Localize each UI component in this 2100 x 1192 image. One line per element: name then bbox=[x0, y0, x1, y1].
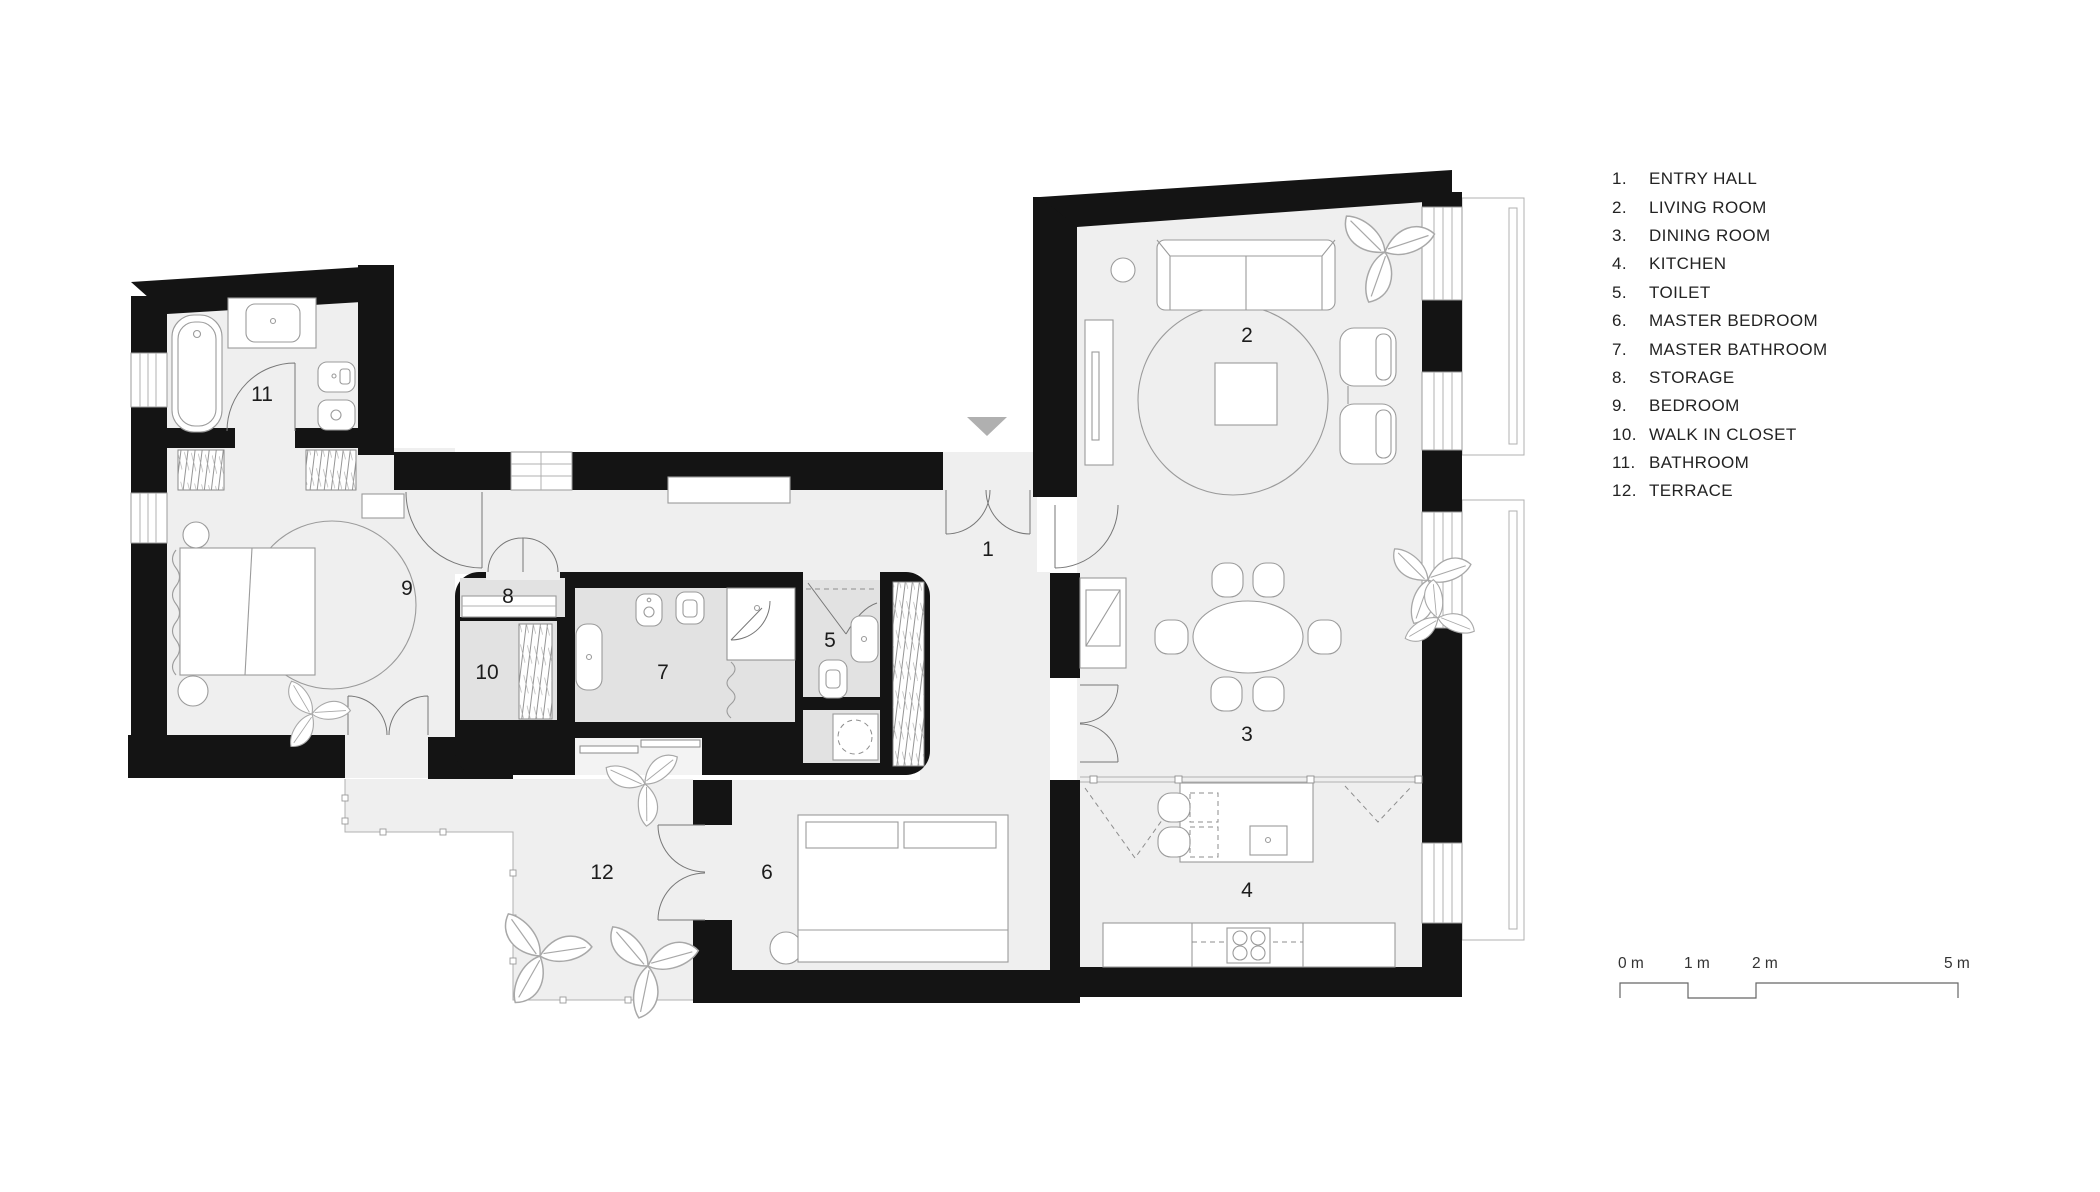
room-label-master-bedroom: 6 bbox=[761, 861, 773, 884]
scale-label-0m: 0 m bbox=[1618, 955, 1644, 972]
room-label-storage: 8 bbox=[502, 585, 514, 608]
room-label-dining-room: 3 bbox=[1241, 723, 1253, 746]
room-legend: 1. ENTRY HALL 2. LIVING ROOM 3. DINING R… bbox=[1612, 165, 1828, 506]
room-label-master-bathroom: 7 bbox=[657, 661, 669, 684]
room-label-walk-in-closet: 10 bbox=[475, 661, 498, 684]
legend-item-toilet: 5. TOILET bbox=[1612, 279, 1828, 307]
scale-label-5m: 5 m bbox=[1944, 955, 1970, 972]
legend-item-entry-hall: 1. ENTRY HALL bbox=[1612, 165, 1828, 193]
legend-item-storage: 8. STORAGE bbox=[1612, 364, 1828, 392]
legend-item-master-bedroom: 6. MASTER BEDROOM bbox=[1612, 307, 1828, 335]
floor-plan-page: 1 2 3 4 5 6 7 8 9 10 11 12 0 m 1 m 2 m 5… bbox=[0, 0, 2100, 1192]
room-label-kitchen: 4 bbox=[1241, 879, 1253, 902]
room-label-terrace: 12 bbox=[590, 861, 613, 884]
scale-label-1m: 1 m bbox=[1684, 955, 1710, 972]
legend-item-kitchen: 4. KITCHEN bbox=[1612, 250, 1828, 278]
scale-label-2m: 2 m bbox=[1752, 955, 1778, 972]
room-label-living-room: 2 bbox=[1241, 324, 1253, 347]
legend-item-terrace: 12. TERRACE bbox=[1612, 477, 1828, 505]
room-label-entry-hall: 1 bbox=[982, 538, 994, 561]
master-bedroom-furniture bbox=[770, 815, 1008, 964]
entrance-marker-icon bbox=[967, 417, 1007, 436]
room-label-toilet: 5 bbox=[824, 629, 836, 652]
legend-item-walk-in-closet: 10. WALK IN CLOSET bbox=[1612, 421, 1828, 449]
legend-item-bedroom: 9. BEDROOM bbox=[1612, 392, 1828, 420]
legend-item-master-bathroom: 7. MASTER BATHROOM bbox=[1612, 335, 1828, 363]
legend-item-bathroom: 11. BATHROOM bbox=[1612, 449, 1828, 477]
legend-item-living-room: 2. LIVING ROOM bbox=[1612, 193, 1828, 221]
room-label-bathroom: 11 bbox=[251, 383, 273, 406]
legend-item-dining-room: 3. DINING ROOM bbox=[1612, 222, 1828, 250]
scale-bar: 0 m 1 m 2 m 5 m bbox=[1618, 955, 1970, 998]
room-label-bedroom: 9 bbox=[401, 577, 413, 600]
balconies bbox=[1462, 198, 1524, 940]
